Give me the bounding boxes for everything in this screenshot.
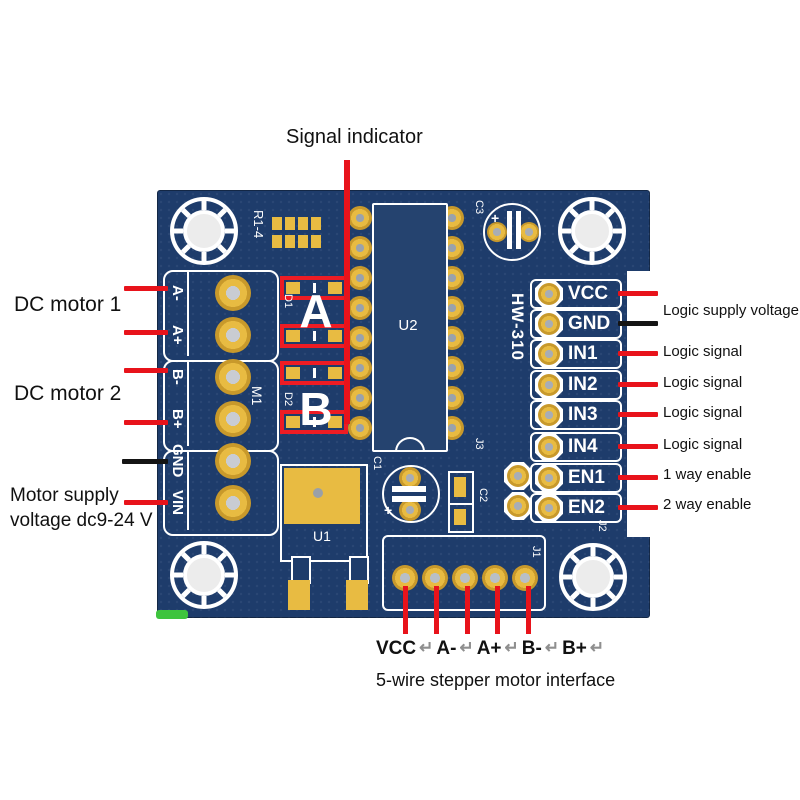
pin-pad: [504, 462, 532, 490]
through-hole-pad: [215, 485, 251, 521]
dc-motor-1-label: DC motor 1: [14, 293, 121, 317]
diode-d1-label: D1: [282, 294, 294, 308]
pin-label: IN2: [568, 374, 598, 396]
wire-en2: [618, 505, 658, 510]
terminal-label-vin: VIN: [166, 482, 186, 524]
pin-pad: [535, 494, 563, 522]
pin-pad: [504, 492, 532, 520]
smd-pad: [298, 217, 308, 230]
motor-driver-board-diagram: R1-4 U2 A: [0, 0, 800, 800]
channel-b-letter: B: [294, 384, 338, 434]
channel-a-letter: A: [294, 286, 338, 336]
mounting-hole: [556, 195, 628, 267]
dip-pad: [348, 296, 372, 320]
through-hole-pad: [215, 359, 251, 395]
pin-label: VCC: [568, 283, 608, 305]
mounting-hole: [557, 541, 629, 613]
driver-chip-u2: U2: [372, 203, 448, 452]
stepper-wire-b-minus: [495, 586, 500, 634]
pin-row-in1: IN1: [530, 339, 622, 369]
terminal-label-b-minus: B-: [166, 356, 186, 398]
leg-pad: [288, 580, 310, 610]
capacitor-bar: [516, 211, 521, 249]
pin-label: IN3: [568, 404, 598, 426]
return-arrow-icon: ↵: [459, 638, 473, 658]
wire-en1: [618, 475, 658, 480]
pin-label: EN2: [568, 497, 605, 519]
smd-pad: [272, 235, 282, 248]
divider: [187, 362, 189, 446]
stepper-pin-label: B-: [522, 638, 542, 660]
pin-row-en2: EN2: [530, 493, 622, 523]
leg-pad: [346, 580, 368, 610]
c1-label: C1: [371, 456, 383, 470]
m1-label: M1: [249, 386, 265, 405]
wire-gnd-right: [618, 321, 658, 326]
diode-d2-label: D2: [282, 392, 294, 406]
return-arrow-icon: ↵: [419, 638, 433, 658]
polarity-plus: +: [384, 502, 392, 518]
terminal-label-gnd: GND: [166, 440, 186, 482]
motor-supply-label-line2: voltage dc9-24 V: [10, 510, 153, 532]
capacitor-pad: [519, 222, 539, 242]
pin-pad: [535, 464, 563, 492]
pin-row-in4: IN4: [530, 432, 622, 462]
pin-note-en2: 2 way enable: [663, 496, 751, 513]
j3-label: J3: [473, 438, 485, 450]
wire-in4: [618, 444, 658, 449]
pin-note-in1: Logic signal: [663, 343, 742, 360]
motor-supply-label-line1: Motor supply: [10, 485, 119, 507]
stepper-wire-a-plus: [465, 586, 470, 634]
pin-note-in3: Logic signal: [663, 404, 742, 421]
wire-a-minus: [124, 286, 168, 291]
pin-row-vcc: VCC: [530, 279, 622, 309]
dip-pad: [348, 386, 372, 410]
dip-pad: [348, 206, 372, 230]
mounting-hole: [168, 195, 240, 267]
pin-note-en1: 1 way enable: [663, 466, 751, 483]
dip-pad: [348, 356, 372, 380]
divider: [187, 452, 189, 530]
capacitor-c2-pad: [448, 471, 474, 505]
smd-pad: [285, 235, 295, 248]
divider: [187, 272, 189, 356]
power-led: [156, 610, 188, 619]
smd-pad: [311, 217, 321, 230]
dip-pad: [348, 416, 372, 440]
stepper-wire-a-minus: [434, 586, 439, 634]
pin-row-gnd: GND: [530, 309, 622, 339]
signal-led-box: [280, 361, 348, 385]
through-hole-pad: [215, 443, 251, 479]
signal-indicator-line: [344, 160, 350, 424]
pin-label: EN1: [568, 467, 605, 489]
board-model-label: HW-310: [507, 293, 527, 361]
resistor-array-label: R1-4: [251, 210, 266, 238]
stepper-pin-names: VCC↵ A-↵ A+↵ B-↵ B+↵: [376, 638, 604, 660]
pin-pad: [535, 310, 563, 338]
pin-label: IN1: [568, 343, 598, 365]
terminal-label-a-minus: A-: [166, 272, 186, 314]
pin-pad: [535, 280, 563, 308]
capacitor-c2-pad: [448, 503, 474, 533]
pin-row-in2: IN2: [530, 370, 622, 400]
capacitor-pad: [399, 499, 421, 521]
chip-notch: [395, 437, 425, 452]
polarity-plus: +: [491, 210, 499, 226]
pin-note-in4: Logic signal: [663, 436, 742, 453]
wire-gnd-left: [122, 459, 168, 464]
pin-pad: [535, 371, 563, 399]
return-arrow-icon: ↵: [545, 638, 559, 658]
pin-note-in2: Logic signal: [663, 374, 742, 391]
stepper-pin-label: A-: [436, 638, 456, 660]
smd-pad: [298, 235, 308, 248]
pin-label: IN4: [568, 436, 598, 458]
wire-a-plus: [124, 330, 168, 335]
terminal-label-a-plus: A+: [166, 314, 186, 356]
board-edge-cutout: [627, 271, 651, 537]
smd-pad: [272, 217, 282, 230]
return-arrow-icon: ↵: [590, 638, 604, 658]
wire-vcc: [618, 291, 658, 296]
dip-pad: [348, 326, 372, 350]
chip-label: U2: [374, 317, 442, 334]
stepper-wire-b-plus: [526, 586, 531, 634]
through-hole-pad: [215, 317, 251, 353]
signal-indicator-label: Signal indicator: [286, 126, 423, 149]
terminal-label-b-plus: B+: [166, 398, 186, 440]
c2-label: C2: [477, 488, 489, 502]
pin-note-vcc: Logic supply voltage: [663, 302, 799, 319]
through-hole-pad: [215, 275, 251, 311]
wire-b-minus: [124, 368, 168, 373]
capacitor-bar: [392, 486, 426, 492]
pin-row-in3: IN3: [530, 400, 622, 430]
dip-pad: [348, 266, 372, 290]
stepper-pin-label: VCC: [376, 638, 416, 660]
dip-pad: [348, 236, 372, 260]
connector-pad: [512, 565, 538, 591]
stepper-pin-label: B+: [562, 638, 587, 660]
capacitor-bar: [392, 496, 426, 502]
c3-label: C3: [473, 200, 485, 214]
pin-row-en1: EN1: [530, 463, 622, 493]
pin-pad: [535, 340, 563, 368]
capacitor-bar: [507, 211, 512, 249]
wire-in3: [618, 412, 658, 417]
wire-in1: [618, 351, 658, 356]
stepper-interface-caption: 5-wire stepper motor interface: [376, 670, 615, 691]
return-arrow-icon: ↵: [505, 638, 519, 658]
stepper-pin-label: A+: [477, 638, 502, 660]
stepper-wire-vcc: [403, 586, 408, 634]
regulator-hole: [313, 488, 323, 498]
pin-label: GND: [568, 313, 610, 335]
dc-motor-2-label: DC motor 2: [14, 382, 121, 406]
pin-pad: [535, 401, 563, 429]
through-hole-pad: [215, 401, 251, 437]
smd-pad: [285, 217, 295, 230]
wire-vin: [124, 500, 168, 505]
pin-pad: [535, 433, 563, 461]
wire-in2: [618, 382, 658, 387]
mounting-hole: [168, 539, 240, 611]
pcb-board: R1-4 U2 A: [157, 190, 650, 618]
u1-label: U1: [280, 528, 364, 544]
smd-pad: [311, 235, 321, 248]
wire-b-plus: [124, 420, 168, 425]
